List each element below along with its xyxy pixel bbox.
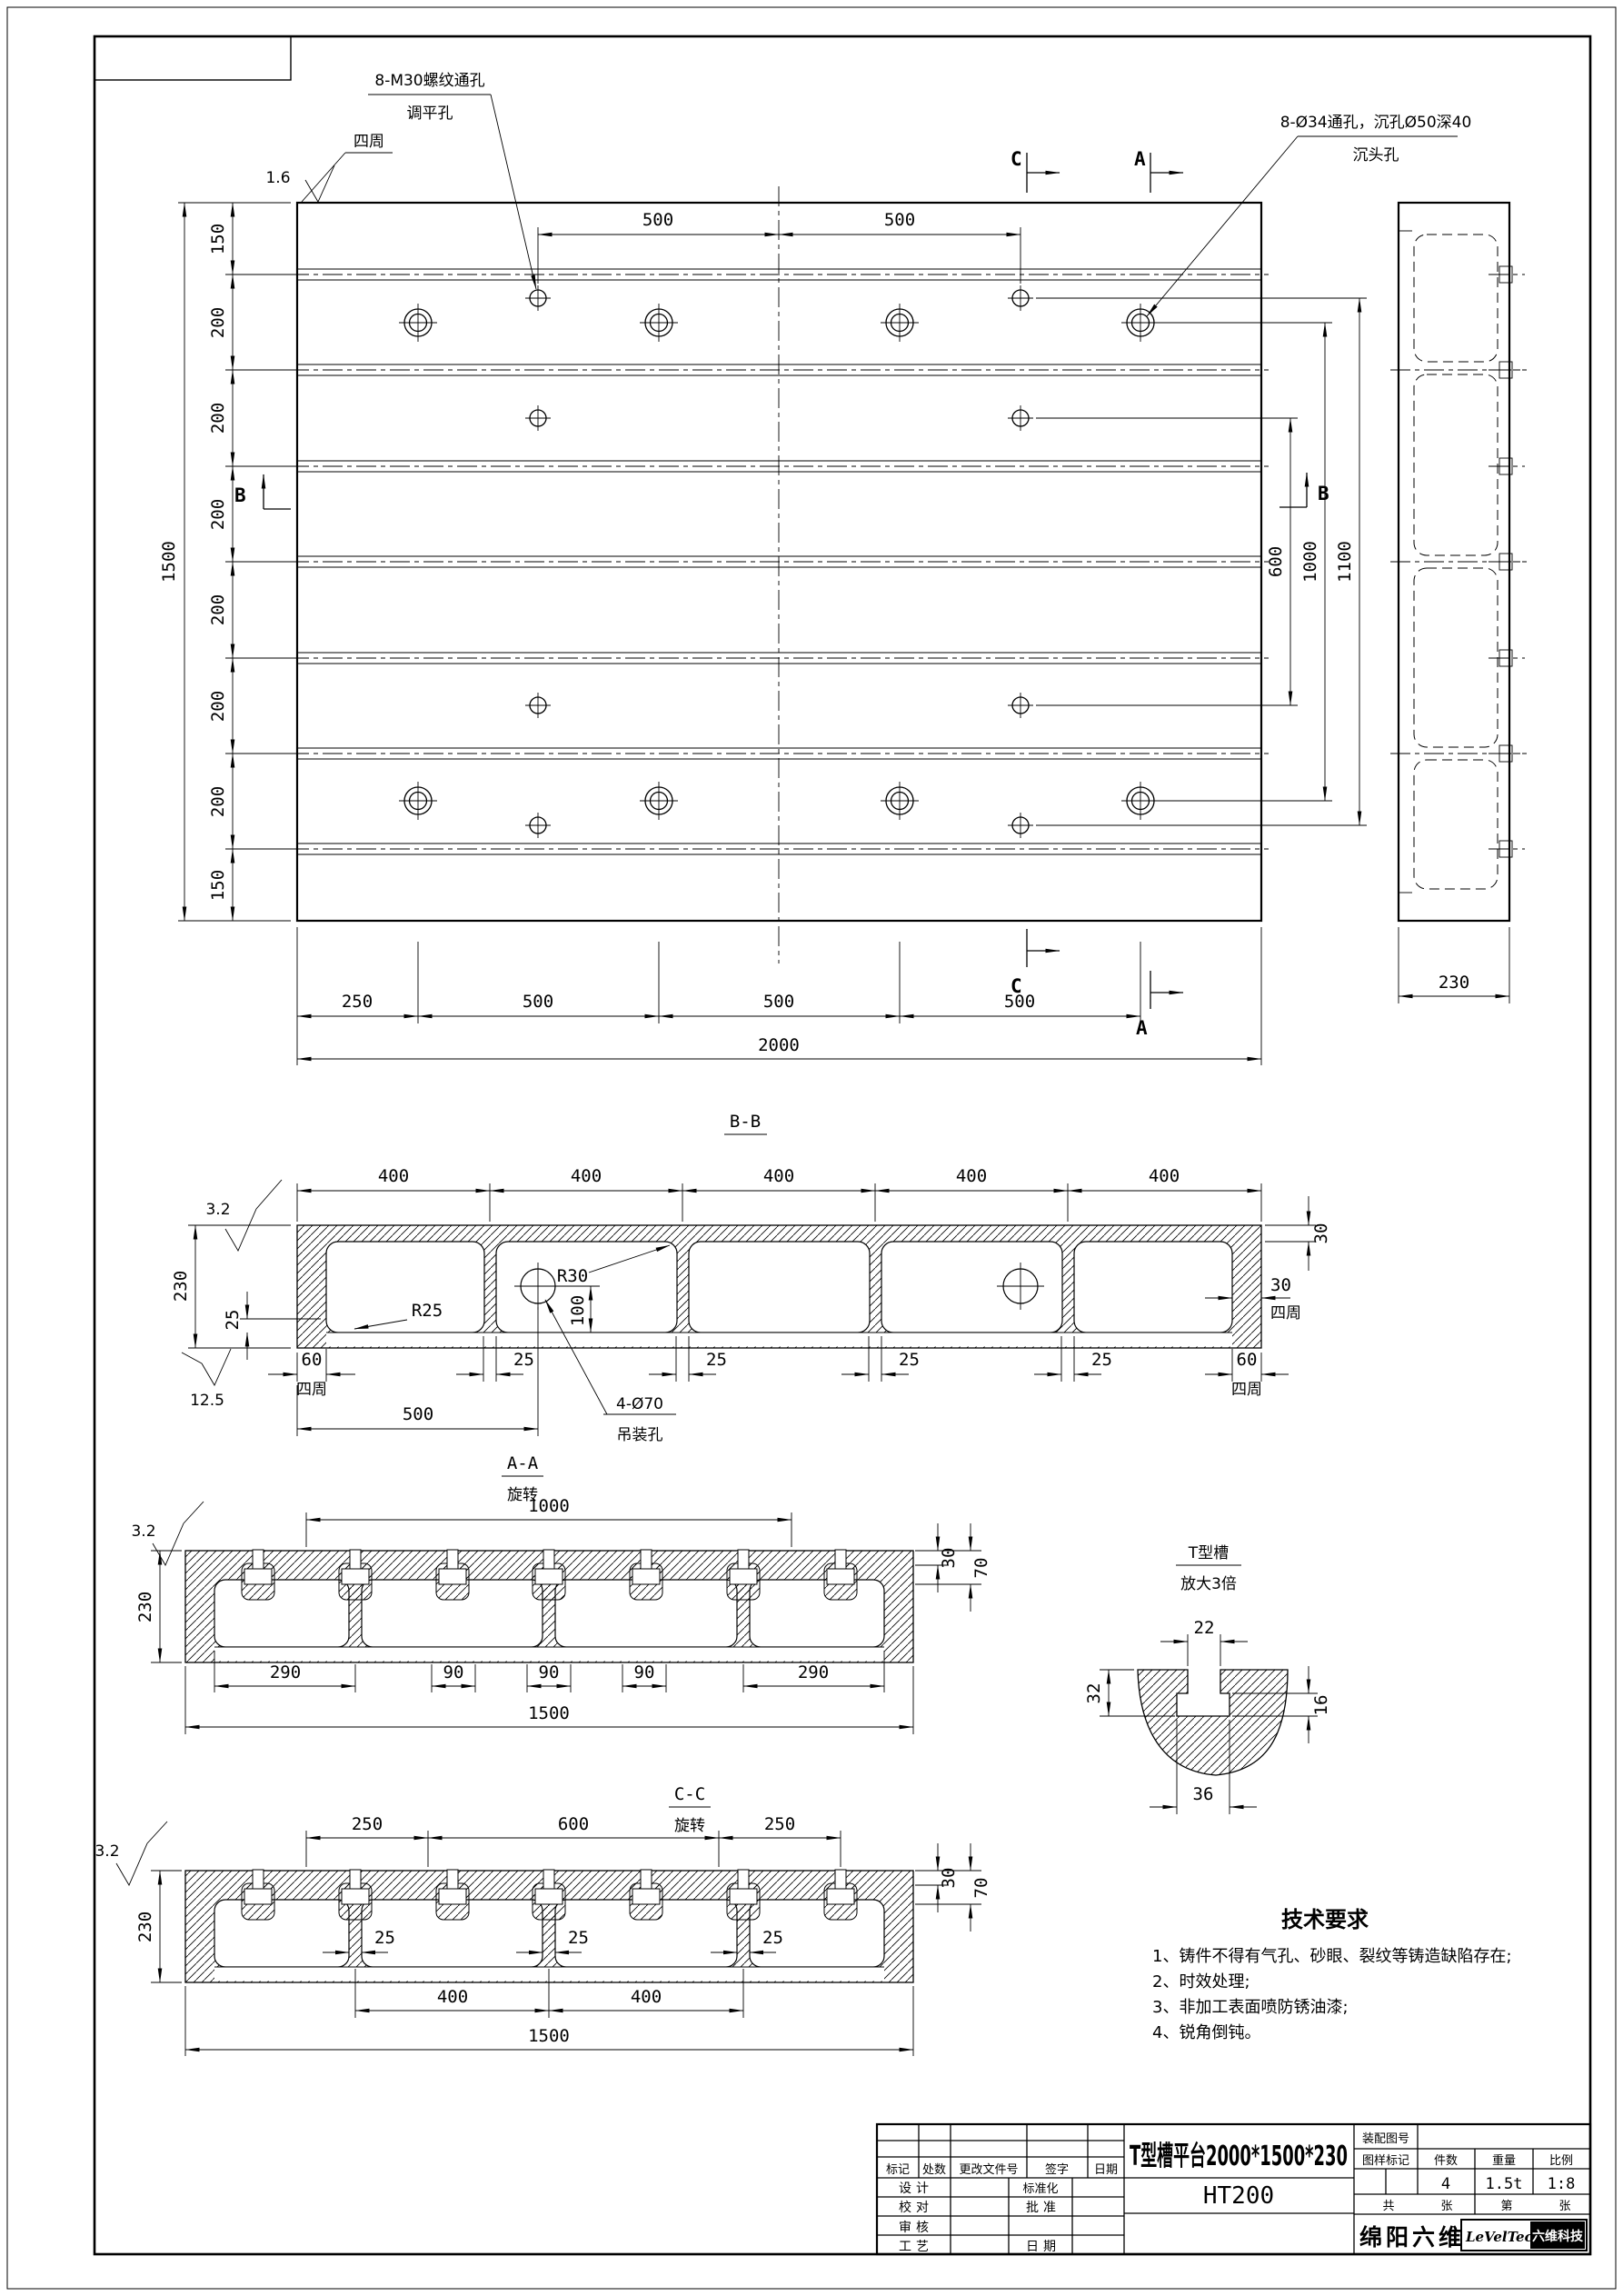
bb-finish2-value: 12.5 — [190, 1392, 224, 1410]
qty-value: 4 — [1441, 2175, 1450, 2193]
tslot-subtitle: 放大3倍 — [1180, 1575, 1237, 1593]
tslot-title: T型槽 — [1188, 1544, 1229, 1562]
tech-item-3: 3、非加工表面喷防锈油漆; — [1152, 1998, 1349, 2017]
cc-30: 30 — [939, 1868, 959, 1889]
qty-label: 件数 — [1434, 2154, 1458, 2168]
cc-400a: 400 — [437, 1987, 468, 2007]
tech-title: 技术要求 — [1281, 1907, 1369, 1932]
bb-dim-230: 230 — [171, 1271, 191, 1302]
aa-70: 70 — [971, 1558, 991, 1579]
company-logo: LeVelTech 六维科技 — [1461, 2220, 1587, 2251]
no-label: 第 — [1500, 2200, 1512, 2213]
aa-90c: 90 — [634, 1662, 655, 1682]
marker-b-label-left: B — [234, 484, 246, 506]
sheet-label: 张 — [1440, 2200, 1452, 2213]
assembly-no-label: 装配图号 — [1362, 2132, 1409, 2146]
cc-title: C-C — [674, 1784, 705, 1804]
bb-dim-25: 25 — [223, 1310, 243, 1331]
cell-review: 审核 — [899, 2221, 933, 2235]
marker-a-label-bottom: A — [1136, 1017, 1148, 1039]
dim-left-0: 150 — [208, 224, 228, 255]
dim-bottom-250: 250 — [342, 992, 373, 1012]
cell-approve: 批准 — [1026, 2201, 1060, 2215]
rev-header-count: 处数 — [922, 2163, 946, 2177]
cc-230: 230 — [135, 1912, 155, 1942]
tech-item-4: 4、锐角倒钝。 — [1152, 2023, 1260, 2042]
dim-bottom-500c: 500 — [1004, 992, 1035, 1012]
bb-r30: R30 — [557, 1266, 588, 1286]
aa-30: 30 — [939, 1548, 959, 1569]
rev-header-sign: 签字 — [1045, 2162, 1069, 2177]
cc-600: 600 — [558, 1814, 589, 1834]
dim-left-total: 1500 — [159, 541, 179, 583]
bb-400-1: 400 — [571, 1166, 602, 1186]
weight-label: 重量 — [1492, 2153, 1516, 2168]
marker-b-label-right: B — [1318, 483, 1329, 504]
cell-date: 日期 — [1026, 2240, 1060, 2254]
drawing-canvas: 8-M30螺纹通孔 调平孔 8-Ø34通孔，沉孔Ø50深40 沉头孔 1.6 四… — [0, 0, 1623, 2296]
dim-left-1: 200 — [208, 307, 228, 338]
material: HT200 — [1203, 2182, 1274, 2210]
bb-rib-2: 25 — [899, 1350, 920, 1370]
dim-right-1100: 1100 — [1335, 541, 1355, 583]
total-label: 共 — [1382, 2200, 1394, 2213]
weight-value: 1.5t — [1486, 2175, 1523, 2193]
tslot-36: 36 — [1193, 1784, 1214, 1804]
bb-rib-0: 25 — [513, 1350, 534, 1370]
bb-400-2: 400 — [763, 1166, 794, 1186]
rev-header-date: 日期 — [1094, 2163, 1118, 2177]
cc-250r: 250 — [764, 1814, 795, 1834]
dim-bottom-500b: 500 — [763, 992, 794, 1012]
cc-rib-1: 25 — [568, 1928, 589, 1948]
bb-scope1: 四周 — [1270, 1304, 1301, 1323]
cell-process: 工艺 — [899, 2240, 933, 2254]
m30-label-line1: 8-M30螺纹通孔 — [374, 72, 484, 90]
cell-standardize: 标准化 — [1022, 2182, 1058, 2196]
bb-dim-60r: 60 — [1237, 1350, 1258, 1370]
cell-design: 设计 — [899, 2181, 933, 2196]
bb-100: 100 — [568, 1295, 588, 1326]
bb-scope3: 四周 — [1231, 1381, 1262, 1399]
bb-dim-60l: 60 — [302, 1350, 323, 1370]
m30-label-line2: 调平孔 — [407, 105, 453, 123]
tslot-32: 32 — [1084, 1683, 1104, 1704]
finish-value: 1.6 — [265, 169, 290, 187]
tslot-16: 16 — [1311, 1695, 1331, 1716]
cc-note: 旋转 — [674, 1817, 705, 1835]
dim-left-5: 200 — [208, 691, 228, 722]
bb-hole-label1: 4-Ø70 — [616, 1395, 663, 1413]
bb-rib-3: 25 — [1091, 1350, 1112, 1370]
aa-1000: 1000 — [528, 1496, 570, 1516]
bb-scope2: 四周 — [296, 1381, 327, 1399]
logo-text-cn: 六维科技 — [1532, 2229, 1584, 2244]
cc-rib-2: 25 — [762, 1928, 783, 1948]
dim-left-3: 200 — [208, 499, 228, 530]
part-title: T型槽平台2000*1500*230 — [1130, 2141, 1348, 2172]
tech-item-1: 1、铸件不得有气孔、砂眼、裂纹等铸造缺陷存在; — [1152, 1947, 1512, 1966]
tech-item-2: 2、时效处理; — [1152, 1972, 1250, 1992]
dim-bottom-total: 2000 — [758, 1035, 800, 1055]
aa-230: 230 — [135, 1592, 155, 1622]
mark-label: 图样标记 — [1362, 2154, 1409, 2168]
c34-label-line1: 8-Ø34通孔，沉孔Ø50深40 — [1280, 114, 1472, 132]
marker-a-label: A — [1134, 148, 1146, 170]
bb-dim-500: 500 — [403, 1404, 433, 1424]
dim-right-600: 600 — [1266, 546, 1286, 577]
c34-label-line2: 沉头孔 — [1353, 146, 1399, 165]
sheet-label2: 张 — [1558, 2200, 1570, 2213]
dim-bottom-500a: 500 — [523, 992, 553, 1012]
cc-250l: 250 — [352, 1814, 383, 1834]
aa-90a: 90 — [443, 1662, 464, 1682]
dim-side-230: 230 — [1439, 973, 1469, 993]
bb-title: B-B — [730, 1112, 761, 1132]
scale-label: 比例 — [1549, 2154, 1573, 2168]
dim-left-7: 150 — [208, 870, 228, 901]
cc-rib-0: 25 — [374, 1928, 395, 1948]
dim-top-2: 500 — [884, 210, 915, 230]
cc-70: 70 — [971, 1878, 991, 1899]
bb-400-0: 400 — [378, 1166, 409, 1186]
dim-top-1: 500 — [642, 210, 673, 230]
dim-left-6: 200 — [208, 786, 228, 817]
bb-finish-value: 3.2 — [205, 1201, 230, 1219]
bb-400-3: 400 — [956, 1166, 987, 1186]
aa-subtitle: A-A — [507, 1453, 539, 1473]
bb-dim-30v: 30 — [1311, 1223, 1331, 1244]
dim-left-2: 200 — [208, 403, 228, 434]
drawing-sheet: 8-M30螺纹通孔 调平孔 8-Ø34通孔，沉孔Ø50深40 沉头孔 1.6 四… — [0, 0, 1623, 2296]
bb-400-4: 400 — [1149, 1166, 1180, 1186]
aa-1500: 1500 — [528, 1703, 570, 1723]
bb-hole-label2: 吊装孔 — [617, 1426, 663, 1444]
bb-dim-30s: 30 — [1270, 1275, 1291, 1295]
finish-scope: 四周 — [353, 133, 384, 151]
cc-1500: 1500 — [528, 2026, 570, 2046]
bb-r25: R25 — [412, 1301, 443, 1321]
tslot-22: 22 — [1194, 1618, 1215, 1638]
aa-90b: 90 — [539, 1662, 560, 1682]
bb-rib-1: 25 — [706, 1350, 727, 1370]
cc-finish-value: 3.2 — [95, 1842, 119, 1861]
company-name: 绵阳六维 — [1359, 2224, 1465, 2251]
dim-right-1000: 1000 — [1300, 541, 1320, 583]
dim-left-4: 200 — [208, 594, 228, 625]
rev-header-mark: 标记 — [886, 2163, 910, 2177]
cc-400b: 400 — [631, 1987, 662, 2007]
scale-value: 1:8 — [1548, 2175, 1576, 2193]
aa-290r: 290 — [798, 1662, 829, 1682]
rev-header-docno: 更改文件号 — [959, 2163, 1018, 2177]
marker-c-label: C — [1011, 148, 1022, 170]
aa-290l: 290 — [270, 1662, 301, 1682]
cell-proof: 校对 — [899, 2200, 933, 2215]
aa-finish-value: 3.2 — [131, 1522, 155, 1541]
